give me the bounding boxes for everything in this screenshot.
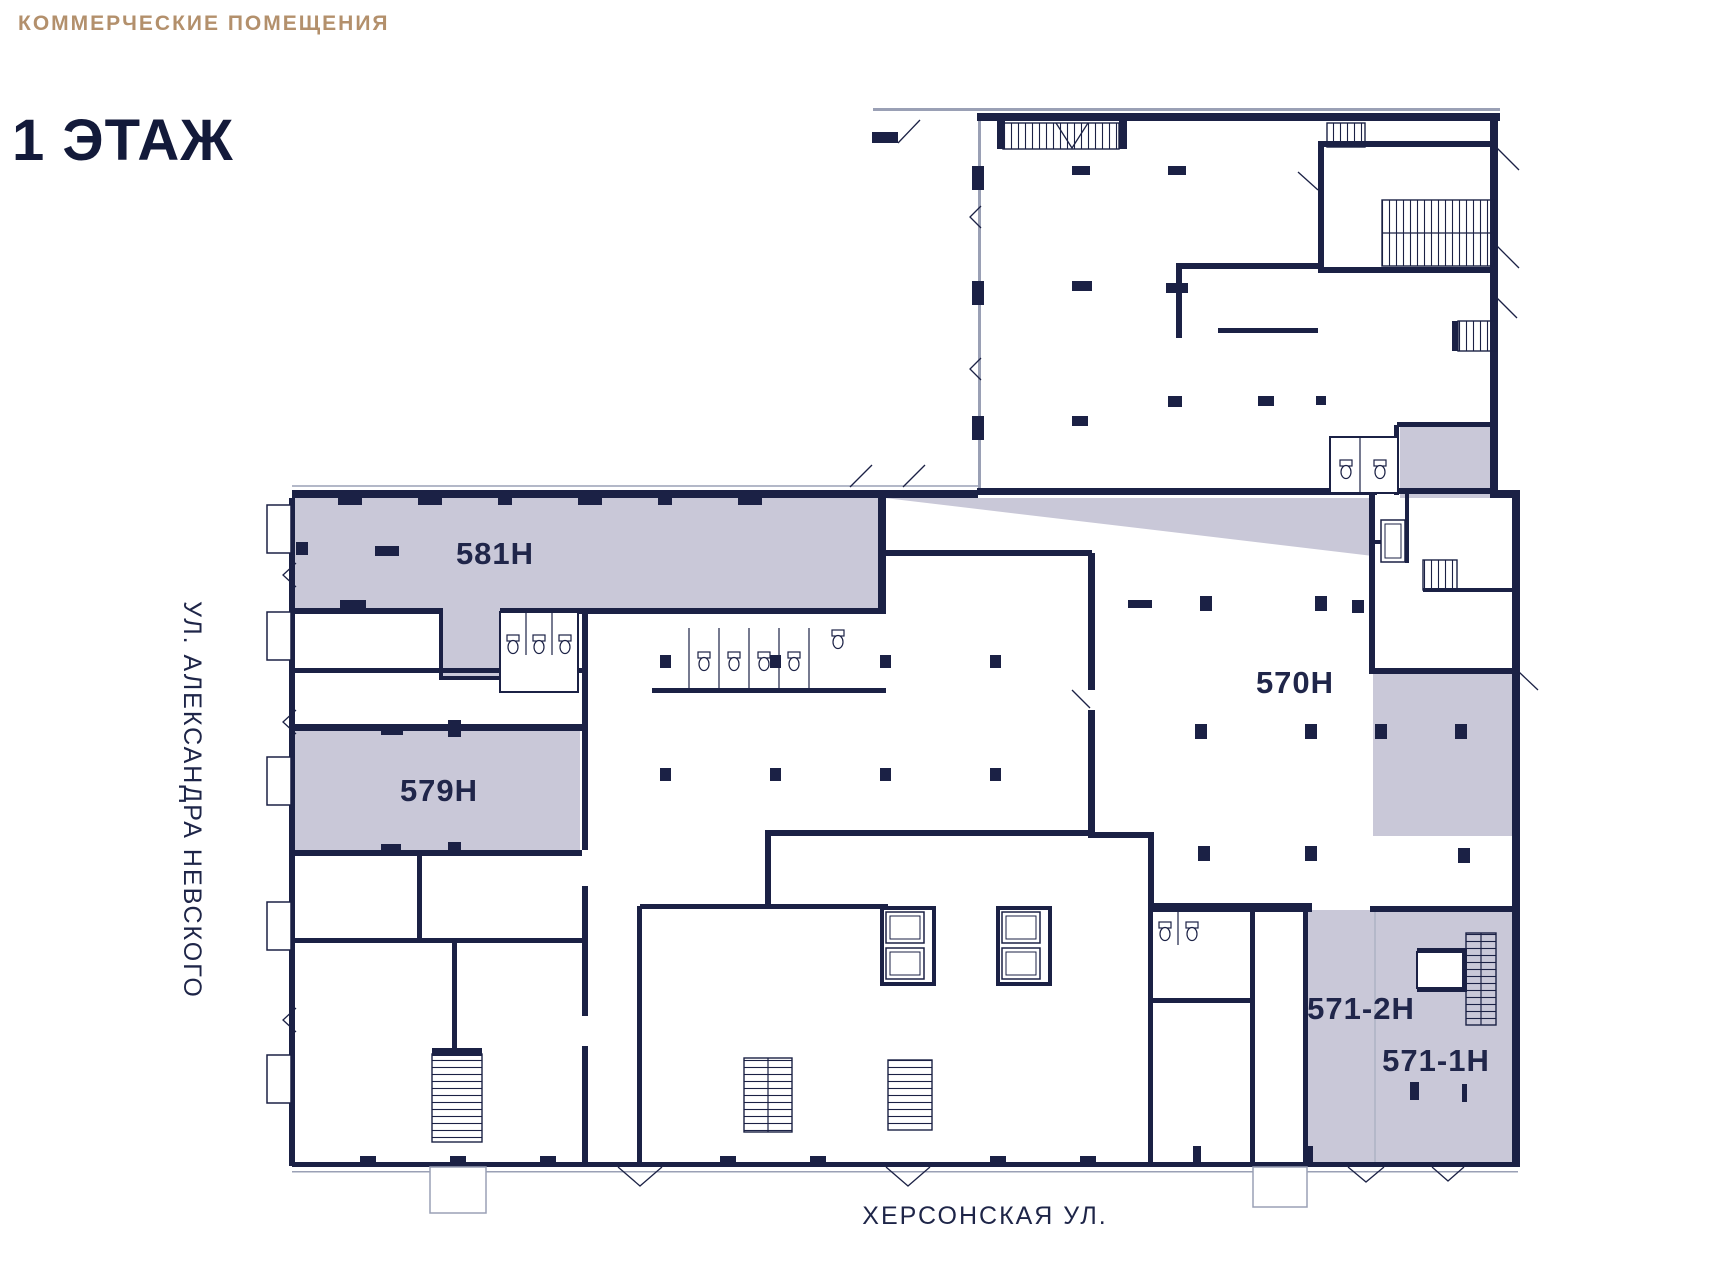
unit-region-571-2n[interactable] bbox=[1307, 910, 1420, 1166]
unit-label-570n: 570Н bbox=[1256, 665, 1334, 700]
unit-label-571-2n: 571-2Н bbox=[1307, 991, 1415, 1026]
window-bays bbox=[267, 206, 981, 1103]
unit-region-570n[interactable] bbox=[885, 425, 1514, 910]
street-label-left: УЛ. АЛЕКСАНДРА НЕВСКОГО bbox=[178, 601, 206, 999]
page-kicker: КОММЕРЧЕСКИЕ ПОМЕЩЕНИЯ bbox=[18, 12, 390, 35]
unit-label-579n: 579Н bbox=[400, 773, 478, 808]
floor-plan-canvas: КОММЕРЧЕСКИЕ ПОМЕЩЕНИЯ 1 ЭТАЖ УЛ. АЛЕКСА… bbox=[0, 0, 1726, 1278]
floor-plan-page: КОММЕРЧЕСКИЕ ПОМЕЩЕНИЯ 1 ЭТАЖ УЛ. АЛЕКСА… bbox=[0, 0, 1726, 1278]
street-label-bottom: ХЕРСОНСКАЯ УЛ. bbox=[862, 1202, 1107, 1230]
unit-label-571-1n: 571-1Н bbox=[1382, 1043, 1490, 1078]
unit-label-581n: 581Н bbox=[456, 536, 534, 571]
page-title: 1 ЭТАЖ bbox=[12, 108, 234, 173]
